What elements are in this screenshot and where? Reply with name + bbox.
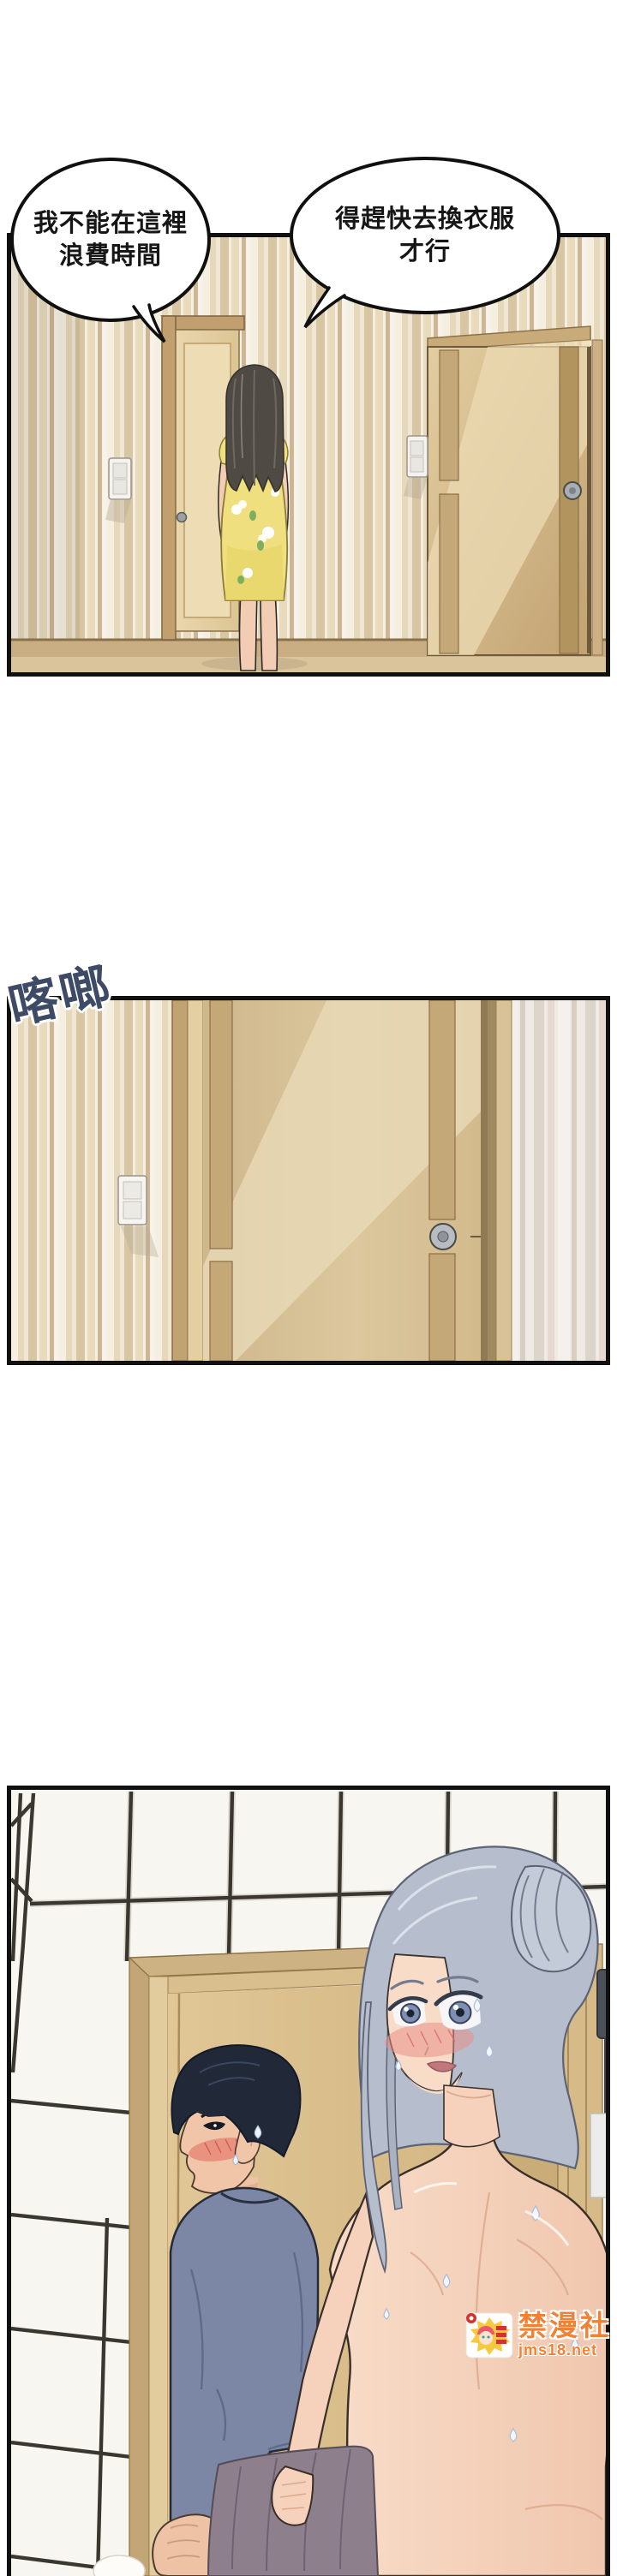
woman-leg-right [261, 593, 277, 671]
speech-bubble-2-line-2: 才行 [399, 236, 451, 268]
speech-bubble-2-line-1: 得趕快去換衣服 [335, 203, 515, 236]
wallpaper-right [512, 1000, 606, 1361]
door-frame-right-shadow [488, 1000, 496, 1361]
watermark: 禁漫社 jms18.net [465, 2311, 611, 2359]
left-doorknob [177, 513, 187, 522]
watermark-site-url: jms18.net [518, 2341, 597, 2358]
speech-bubble-1-line-2: 浪費時間 [59, 240, 162, 272]
watermark-logo-icon [465, 2311, 513, 2359]
comic-page: 我不能在這裡 浪費時間 得趕快去換衣服 才行 [0, 0, 617, 2576]
panel-bathroom [7, 1786, 610, 2576]
woman-leg-left [240, 593, 258, 671]
speech-bubble-1-line-1: 我不能在這裡 [33, 207, 188, 240]
speech-bubble-1-tail [129, 301, 177, 346]
panel-door-closeup [7, 996, 610, 1365]
door [203, 1000, 488, 1361]
wallpaper-left [11, 1000, 176, 1361]
speech-bubble-1: 我不能在這裡 浪費時間 [10, 158, 211, 322]
door-scene-art [11, 1000, 606, 1361]
watermark-site-name: 禁漫社 [518, 2311, 611, 2341]
door-frame-right [496, 1000, 512, 1361]
right-door [428, 326, 602, 655]
speech-bubble-2-tail [298, 283, 358, 332]
floor [11, 657, 606, 672]
bathroom-scene-art [11, 1790, 606, 2576]
door-frame-left [172, 1000, 188, 1361]
